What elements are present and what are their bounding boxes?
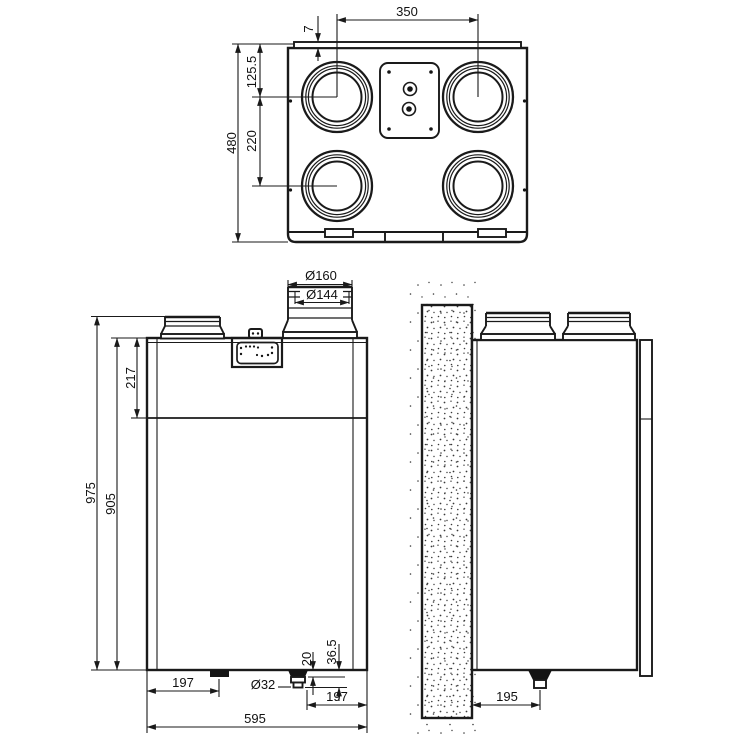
dimension-foot-offset: 197 <box>147 670 219 733</box>
duct-port-bottom-right <box>443 151 513 221</box>
dim-label-197-left: 197 <box>172 675 194 690</box>
technical-drawing-page: 350 7 480 125.5 220 <box>0 0 750 750</box>
strip-dividers <box>385 232 443 241</box>
side-body <box>472 340 637 670</box>
front-body <box>147 338 367 670</box>
dimension-body-width: 595 <box>147 711 367 727</box>
drawing-svg: 350 7 480 125.5 220 <box>0 0 750 750</box>
dim-label-975: 975 <box>83 482 98 504</box>
dimension-drain-diameter: Ø32 <box>251 677 291 692</box>
dim-label-595: 595 <box>244 711 266 726</box>
side-duct-collar-right <box>563 313 635 340</box>
control-panel-connector <box>249 329 262 338</box>
dim-label-36-5: 36.5 <box>324 639 339 664</box>
front-condensate-drain <box>288 670 308 688</box>
dim-label-480: 480 <box>224 132 239 154</box>
dim-label-o32: Ø32 <box>251 677 276 692</box>
dim-label-195: 195 <box>496 689 518 704</box>
dimension-duct-outer: Ø160 <box>288 268 352 285</box>
dim-label-220: 220 <box>244 130 259 152</box>
front-foot <box>210 670 229 677</box>
dimension-duct-inner: Ø144 <box>295 287 349 303</box>
dim-label-o160: Ø160 <box>305 268 337 283</box>
dimension-depth: 480 <box>224 44 294 242</box>
mounting-tab-left <box>325 229 353 237</box>
front-view: Ø160 Ø144 <box>83 268 367 733</box>
connection-plate <box>380 63 439 138</box>
mounting-wall <box>422 305 472 718</box>
top-lip-flange <box>294 42 521 48</box>
dimension-drain-from-wall: 195 <box>472 689 540 710</box>
top-view: 350 7 480 125.5 220 <box>224 4 527 242</box>
dimension-top-section: 217 <box>123 338 147 418</box>
mounting-tab-right <box>478 229 506 237</box>
dim-label-905: 905 <box>103 493 118 515</box>
dim-label-197-right: 197 <box>326 689 348 704</box>
dim-label-o144: Ø144 <box>306 287 338 302</box>
side-condensate-drain <box>528 670 552 688</box>
dim-label-7: 7 <box>301 25 316 32</box>
side-front-panel <box>640 340 652 676</box>
dim-label-125-5: 125.5 <box>244 56 259 89</box>
dim-label-350: 350 <box>396 4 418 19</box>
side-duct-collar-left <box>481 313 555 340</box>
dim-label-217: 217 <box>123 367 138 389</box>
dim-label-20: 20 <box>299 652 314 666</box>
side-view: 195 <box>407 279 652 736</box>
front-duct-collar-left <box>161 317 224 339</box>
dimension-drain-offset: 197 <box>307 670 367 733</box>
dimension-lip-height: 7 <box>301 16 318 61</box>
